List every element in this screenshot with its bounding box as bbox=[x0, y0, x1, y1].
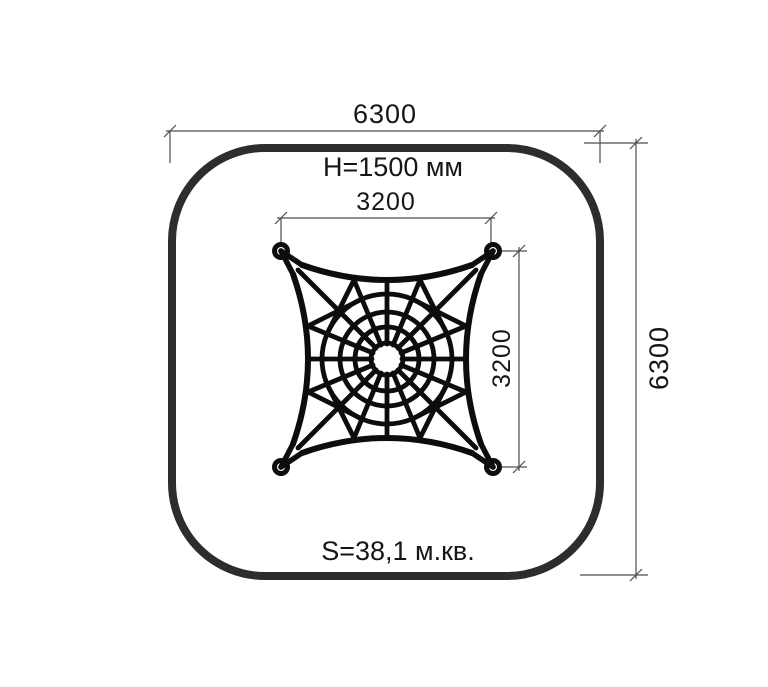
drawing-canvas: 6300 6300 3200 3200 bbox=[0, 0, 768, 687]
radial-ropes bbox=[298, 270, 476, 448]
zone-width-label: 6300 bbox=[353, 99, 417, 129]
plan-view-drawing: 6300 6300 3200 3200 bbox=[0, 0, 768, 687]
spider-net-drawing bbox=[275, 245, 500, 474]
net-height-label: 3200 bbox=[488, 328, 516, 388]
zone-height-label: 6300 bbox=[644, 326, 674, 390]
ring-ropes bbox=[322, 294, 452, 424]
net-width-dimension bbox=[275, 212, 497, 243]
net-width-label: 3200 bbox=[356, 188, 416, 216]
area-note: S=38,1 м.кв. bbox=[321, 536, 475, 566]
height-note: H=1500 мм bbox=[323, 152, 463, 182]
